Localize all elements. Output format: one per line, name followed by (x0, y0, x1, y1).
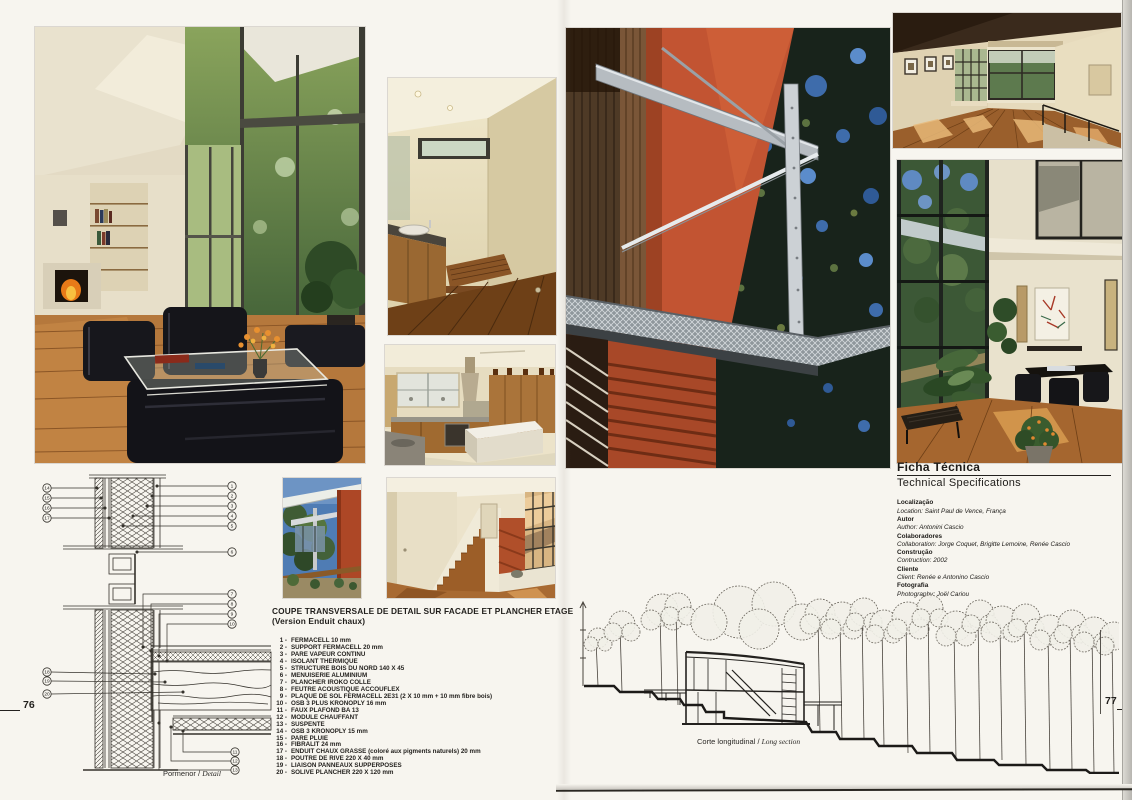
pot (511, 570, 523, 578)
tech-field-value: Author: Antonini Cascio (897, 524, 1111, 532)
svg-text:15: 15 (44, 496, 50, 502)
photo-hallway (893, 13, 1121, 148)
mirror (388, 136, 410, 220)
svg-text:10: 10 (229, 622, 235, 628)
svg-text:13: 13 (232, 768, 238, 774)
trees (584, 582, 1119, 773)
tech-title-pt: Ficha Técnica (897, 461, 1111, 474)
vase (253, 359, 267, 378)
svg-text:4: 4 (231, 514, 234, 520)
svg-text:16: 16 (44, 506, 50, 512)
photo-staircase (387, 478, 555, 598)
callouts-right-top: 1 2 3 4 5 (228, 482, 236, 530)
svg-text:20: 20 (44, 692, 50, 698)
tech-field-label: Construção (897, 549, 1111, 557)
section-caption-en: Long section (762, 737, 801, 746)
tech-field-value: Contruction: 2002 (897, 557, 1111, 565)
bench (951, 101, 987, 106)
svg-text:6: 6 (231, 550, 234, 556)
upper-cabinets (397, 373, 459, 407)
magazine-spread: 14 15 16 17 1 2 3 4 5 6 7 8 (0, 0, 1132, 800)
page-edge-band (1123, 0, 1132, 800)
svg-text:1: 1 (231, 484, 234, 490)
page-number-right: 77 (1105, 695, 1117, 707)
grid-window (955, 49, 987, 101)
outlet (536, 288, 541, 293)
svg-text:12: 12 (232, 759, 238, 765)
legend-title-line2: (Version Enduit chaux) (272, 617, 568, 627)
photo-kitchen (385, 345, 555, 465)
section-caption-pt: Corte longitudinal / (697, 737, 762, 746)
svg-text:17: 17 (44, 516, 50, 522)
tech-title-en: Technical Specifications (897, 477, 1111, 489)
end-window (987, 47, 1059, 103)
photo-facade-truss (566, 28, 890, 468)
tech-field-label: Colaboradores (897, 533, 1111, 541)
materials-legend: COUPE TRANSVERSALE DE DETAIL SUR FACADE … (272, 607, 568, 777)
section-caption: Corte longitudinal / Long section (697, 737, 800, 746)
tech-rule (897, 475, 1111, 476)
page-gutter-shadow (557, 0, 571, 800)
tech-field-label: Localização (897, 499, 1111, 507)
mezzanine-window (1037, 160, 1125, 238)
callout-middle: 6 (228, 548, 236, 556)
detail-drawing: 14 15 16 17 1 2 3 4 5 6 7 8 (33, 470, 273, 782)
photo-exterior (283, 478, 361, 598)
callouts-bottom-right: 11 12 13 (231, 748, 239, 774)
page-bottom-edge (556, 788, 1132, 792)
detail-caption-pt: Pormenor / (163, 769, 202, 778)
svg-text:14: 14 (44, 486, 50, 492)
floor (897, 398, 1125, 463)
callouts-right-mid: 7 8 9 10 (228, 590, 236, 628)
sink-counter (385, 431, 425, 465)
artwork (1035, 288, 1069, 340)
spotlight (415, 91, 421, 97)
photo-living-room (35, 27, 365, 463)
detail-caption-en: Detail (202, 769, 221, 778)
legend-item: 20 -SOLIVE PLANCHER 220 X 120 mm (272, 770, 568, 777)
left-wall (35, 175, 185, 317)
sideboard (1027, 346, 1082, 351)
tech-field-label: Cliente (897, 566, 1111, 574)
svg-text:2: 2 (231, 494, 234, 500)
tech-field-label: Autor (897, 516, 1111, 524)
svg-text:8: 8 (231, 602, 234, 608)
svg-text:3: 3 (231, 504, 234, 510)
legend-items: 1 -FERMACELL 10 mm 2 -SUPPORT FERMACELL … (272, 638, 568, 777)
svg-text:9: 9 (231, 612, 234, 618)
callouts-left-top: 14 15 16 17 (43, 484, 51, 522)
callouts-left-bottom: 18 19 20 (43, 668, 51, 698)
deck-right (804, 702, 842, 730)
svg-text:7: 7 (231, 592, 234, 598)
long-section-drawing (574, 574, 1119, 774)
red-wall (499, 518, 525, 580)
detail-caption: Pormenor / Detail (163, 769, 221, 778)
page-number-rule-left (0, 710, 20, 711)
sink (399, 225, 429, 235)
photo-bathroom (388, 78, 556, 335)
svg-text:18: 18 (44, 670, 50, 676)
svg-text:19: 19 (44, 679, 50, 685)
socket (403, 548, 406, 551)
page-number-rule-vert (1100, 630, 1101, 714)
svg-text:11: 11 (233, 750, 238, 756)
tech-field-value: Collaboration: Jorge Coquet, Brigitte Le… (897, 541, 1111, 549)
photo-double-height-interior (897, 160, 1125, 463)
svg-text:5: 5 (231, 524, 234, 530)
window (418, 138, 490, 159)
ground-line (584, 686, 1119, 773)
tech-field-value: Location: Saint Paul de Vence, França (897, 508, 1111, 516)
page-number-left: 76 (23, 699, 35, 711)
